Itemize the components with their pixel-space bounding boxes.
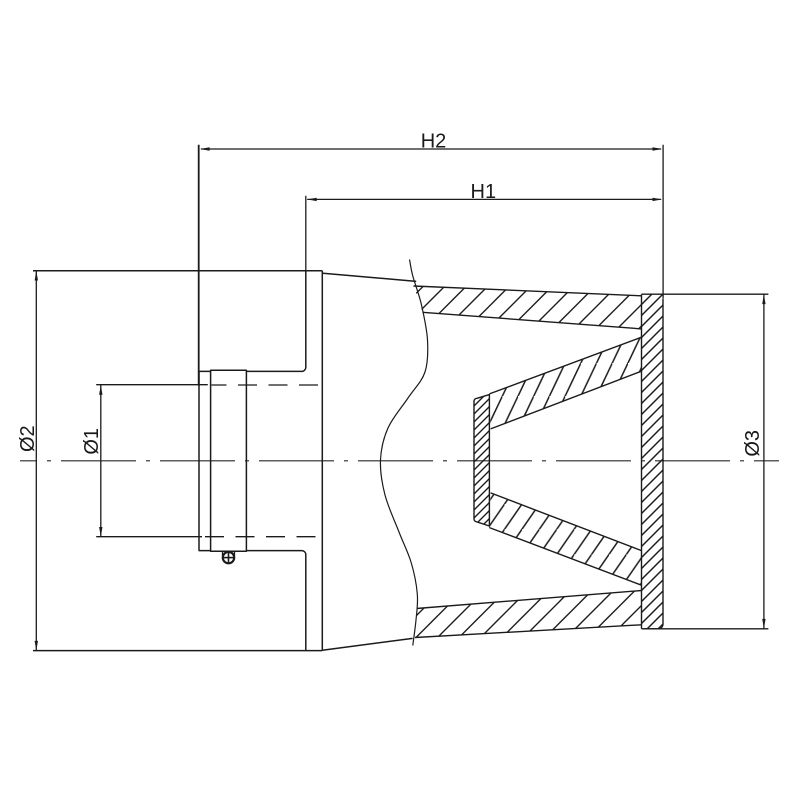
svg-text:Ø2: Ø2 — [17, 425, 39, 452]
svg-text:H1: H1 — [471, 181, 497, 203]
svg-text:Ø1: Ø1 — [81, 428, 103, 455]
svg-text:H2: H2 — [421, 131, 447, 153]
svg-text:Ø3: Ø3 — [742, 430, 764, 457]
